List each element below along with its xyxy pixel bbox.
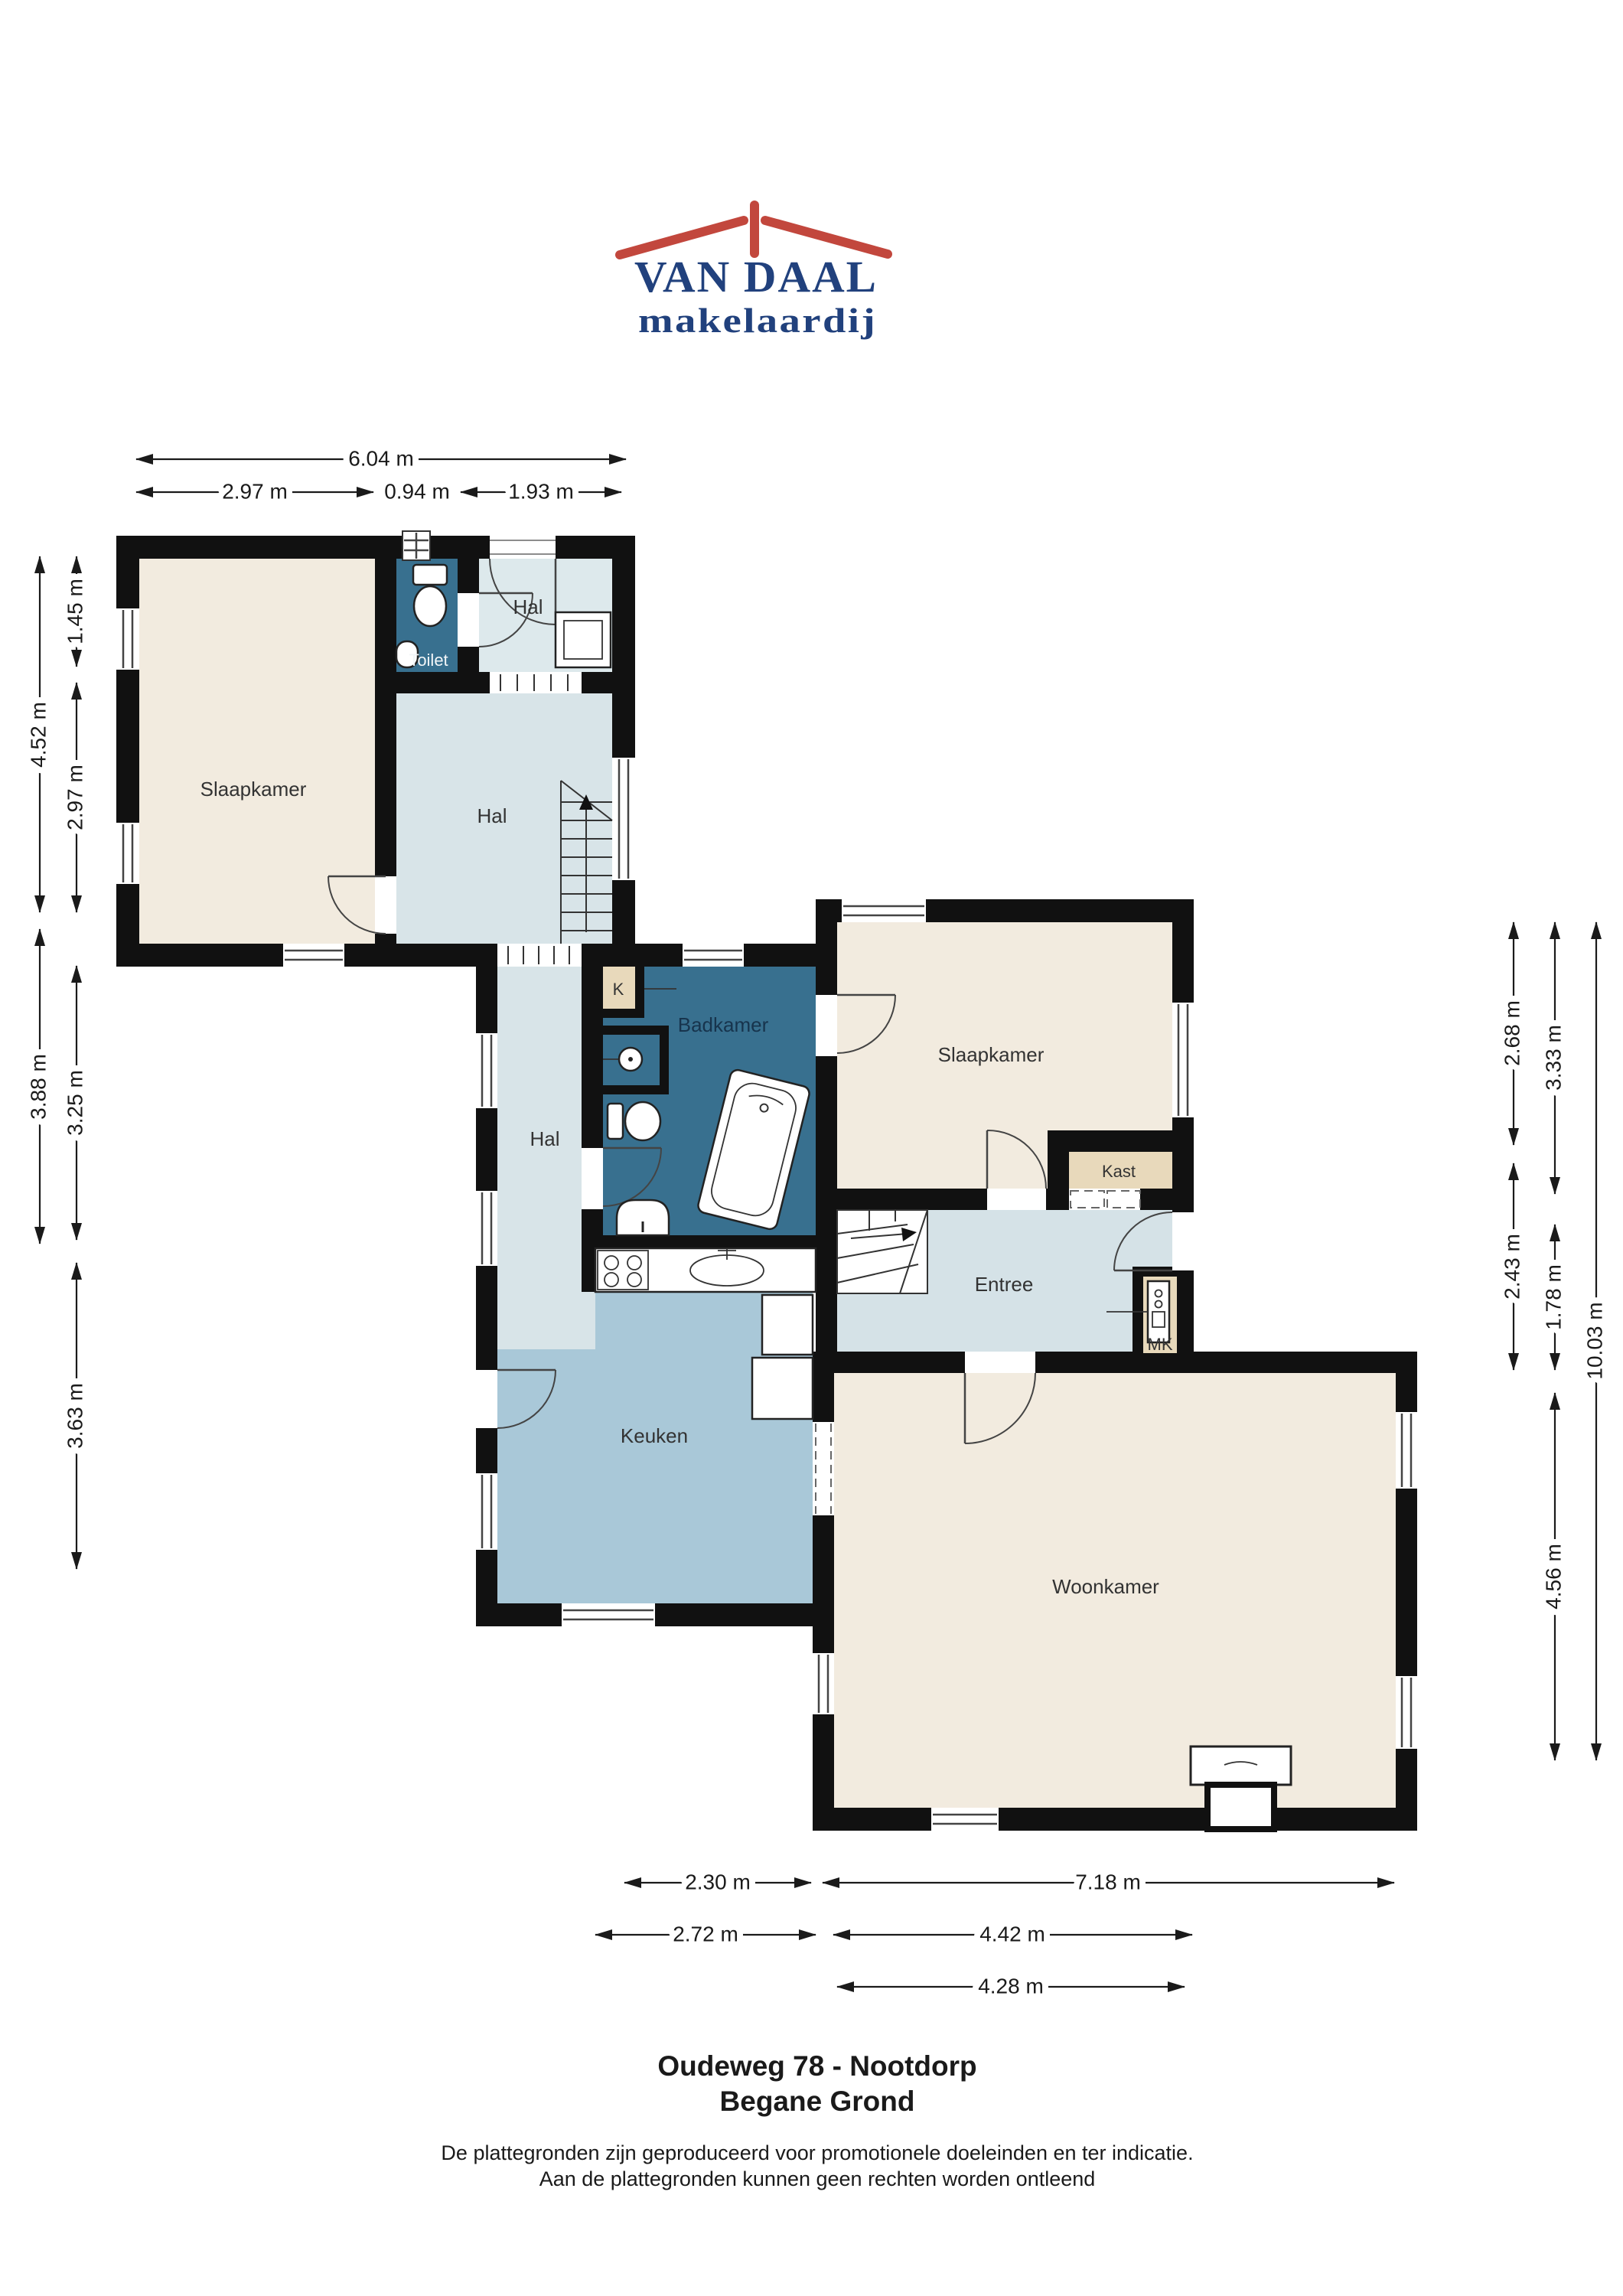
svg-text:4.52 m: 4.52 m [26,702,50,768]
keuken-cabinets [752,1295,813,1419]
svg-text:4.56 m: 4.56 m [1541,1544,1565,1609]
dim-bottom-row3: 4.28 m [837,1974,1185,1998]
label-hal-main: Hal [477,804,507,827]
window-slaapL-left-1 [116,608,139,670]
floorplan-page: VAN DAAL makelaardij [0,0,1623,2296]
svg-text:2.43 m: 2.43 m [1500,1234,1524,1300]
window-slaapR-top [842,899,926,922]
dim-top-right: 1.93 m [461,479,621,503]
badkamer-toilet-icon [608,1102,660,1140]
opening-corridor-hatch [497,944,582,967]
label-slaapkamer-left: Slaapkamer [200,778,307,801]
dim-bottom-row2-left: 2.72 m [595,1922,816,1945]
dim-top-total: 6.04 m [136,446,626,470]
kitchen-counter [595,1248,816,1292]
label-closet-k: K [613,980,624,999]
label-kast: Kast [1102,1162,1136,1181]
dim-right-outer: 10.03 m [1582,922,1606,1760]
haltop-cabinet-icon [556,612,611,667]
dim-bottom-row2-right: 4.42 m [833,1922,1192,1945]
dim-left-upper-inner-bottom: 2.97 m [63,683,86,912]
window-woonkamer-bottom [931,1808,999,1831]
window-woonkamer-right-2 [1396,1676,1417,1749]
room-slaapkamer-left [139,559,375,944]
window-slaapL-bottom [283,944,344,967]
dim-left-lower-inner-bottom: 3.63 m [63,1263,86,1569]
window-keuken-left [476,1473,497,1550]
dim-right-middle-mid: 1.78 m [1541,1225,1565,1370]
opening-halrow-hatch [490,672,582,693]
window-corridor-left-2 [476,1191,497,1266]
disclaimer-line2: Aan de plattegronden kunnen geen rechten… [539,2167,1096,2190]
dim-right-inner-top: 2.68 m [1500,922,1524,1145]
window-slaapR-right [1172,1003,1194,1117]
svg-text:3.63 m: 3.63 m [63,1383,86,1449]
label-keuken: Keuken [621,1424,688,1447]
svg-text:3.88 m: 3.88 m [26,1054,50,1120]
dim-left-lower-outer: 3.88 m [26,929,50,1244]
label-toilet: Toilet [409,651,448,670]
label-hal-top: Hal [513,595,543,618]
page-title-line2: Begane Grond [720,2086,915,2117]
footer: Oudeweg 78 - Nootdorp Begane Grond De pl… [441,2050,1193,2190]
dim-top-left: 2.97 m [136,479,373,503]
svg-text:3.25 m: 3.25 m [63,1070,86,1136]
svg-text:2.30 m: 2.30 m [685,1870,751,1893]
floorplan-canvas: VAN DAAL makelaardij [0,0,1623,2296]
logo: VAN DAAL makelaardij [620,205,888,340]
dim-left-lower-inner-top: 3.25 m [63,966,86,1240]
label-entree: Entree [975,1273,1034,1296]
svg-text:1.78 m: 1.78 m [1541,1264,1565,1330]
logo-name: VAN DAAL [634,252,878,302]
label-meterkast: MK [1148,1335,1173,1354]
opening-keuken-woonkamer-dashed [813,1422,834,1515]
logo-roof-icon [620,205,888,255]
svg-text:0.94 m: 0.94 m [384,479,450,503]
toilet-fixture-icon [413,565,447,626]
dim-bottom-row1-right: 7.18 m [823,1870,1394,1893]
dim-top-middle: 0.94 m [381,479,453,503]
svg-text:6.04 m: 6.04 m [348,446,414,470]
disclaimer-line1: De plattegronden zijn geproduceerd voor … [441,2141,1193,2164]
label-woonkamer: Woonkamer [1052,1575,1159,1598]
svg-text:2.68 m: 2.68 m [1500,1000,1524,1066]
dim-left-upper-outer: 4.52 m [26,556,50,912]
label-badkamer: Badkamer [678,1013,769,1036]
svg-text:4.42 m: 4.42 m [979,1922,1045,1945]
window-keuken-bottom [562,1603,655,1626]
opening-kast-dashed [1069,1189,1140,1210]
label-slaapkamer-right: Slaapkamer [938,1043,1045,1066]
dim-bottom-row1-left: 2.30 m [624,1870,811,1893]
window-toilet-top [402,531,430,560]
dim-right-middle-top: 3.33 m [1541,922,1565,1194]
svg-text:10.03 m: 10.03 m [1582,1302,1606,1379]
dim-right-middle-bottom: 4.56 m [1541,1393,1565,1760]
svg-text:1.93 m: 1.93 m [508,479,574,503]
stairs-entree-icon [837,1210,927,1293]
window-woonkamer-left [813,1653,834,1714]
svg-text:2.72 m: 2.72 m [673,1922,738,1945]
badkamer-sink-icon [617,1200,669,1235]
label-hal-corridor: Hal [530,1127,559,1150]
svg-text:2.97 m: 2.97 m [222,479,288,503]
window-badkamer-top [683,944,744,967]
dim-right-inner-bottom: 2.43 m [1500,1163,1524,1370]
window-halmain-right [612,758,635,880]
svg-text:7.18 m: 7.18 m [1075,1870,1141,1893]
dim-left-upper-inner-top: 1.45 m [63,556,86,667]
window-corridor-left-1 [476,1033,497,1108]
window-slaapL-left-2 [116,823,139,884]
svg-text:1.45 m: 1.45 m [63,579,86,644]
svg-text:4.28 m: 4.28 m [978,1974,1044,1998]
window-woonkamer-right-1 [1396,1412,1417,1489]
logo-tagline: makelaardij [638,301,877,340]
svg-text:2.97 m: 2.97 m [63,765,86,830]
fireplace-icon [1191,1746,1291,1829]
svg-text:3.33 m: 3.33 m [1541,1025,1565,1091]
page-title-line1: Oudeweg 78 - Nootdorp [657,2050,976,2082]
